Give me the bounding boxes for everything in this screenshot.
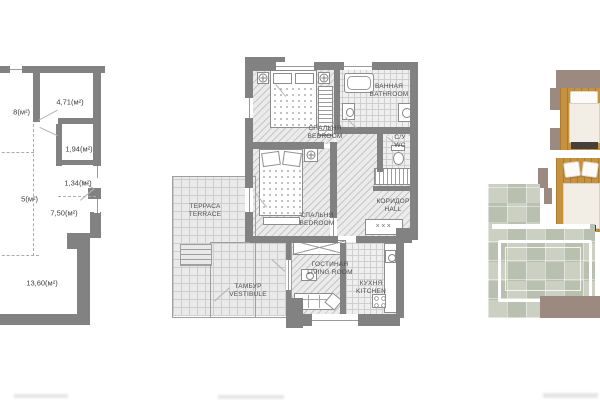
render-wall [550, 128, 560, 150]
render-bed [563, 183, 600, 229]
cut-off-caption [14, 394, 68, 398]
render-window-frame-inner [505, 247, 581, 291]
render-glass-rail [492, 224, 590, 229]
cut-off-caption [543, 393, 598, 398]
render-bed [569, 103, 600, 143]
render-bed-bench [571, 142, 598, 149]
render-pillow [581, 161, 599, 178]
render-stone-terrace [488, 184, 540, 226]
render-wall [556, 70, 600, 88]
render-wall [544, 188, 552, 204]
cut-off-caption [218, 395, 284, 399]
render-wall [550, 88, 560, 110]
floor-plan-comparison-canvas: 8(м²) 4,71(м²) 1,94(м²) 1,34(м²) 5(м²) 7… [0, 0, 600, 400]
render-floor-plan [0, 0, 600, 400]
render-wall [540, 296, 600, 318]
render-pillow [563, 161, 581, 178]
